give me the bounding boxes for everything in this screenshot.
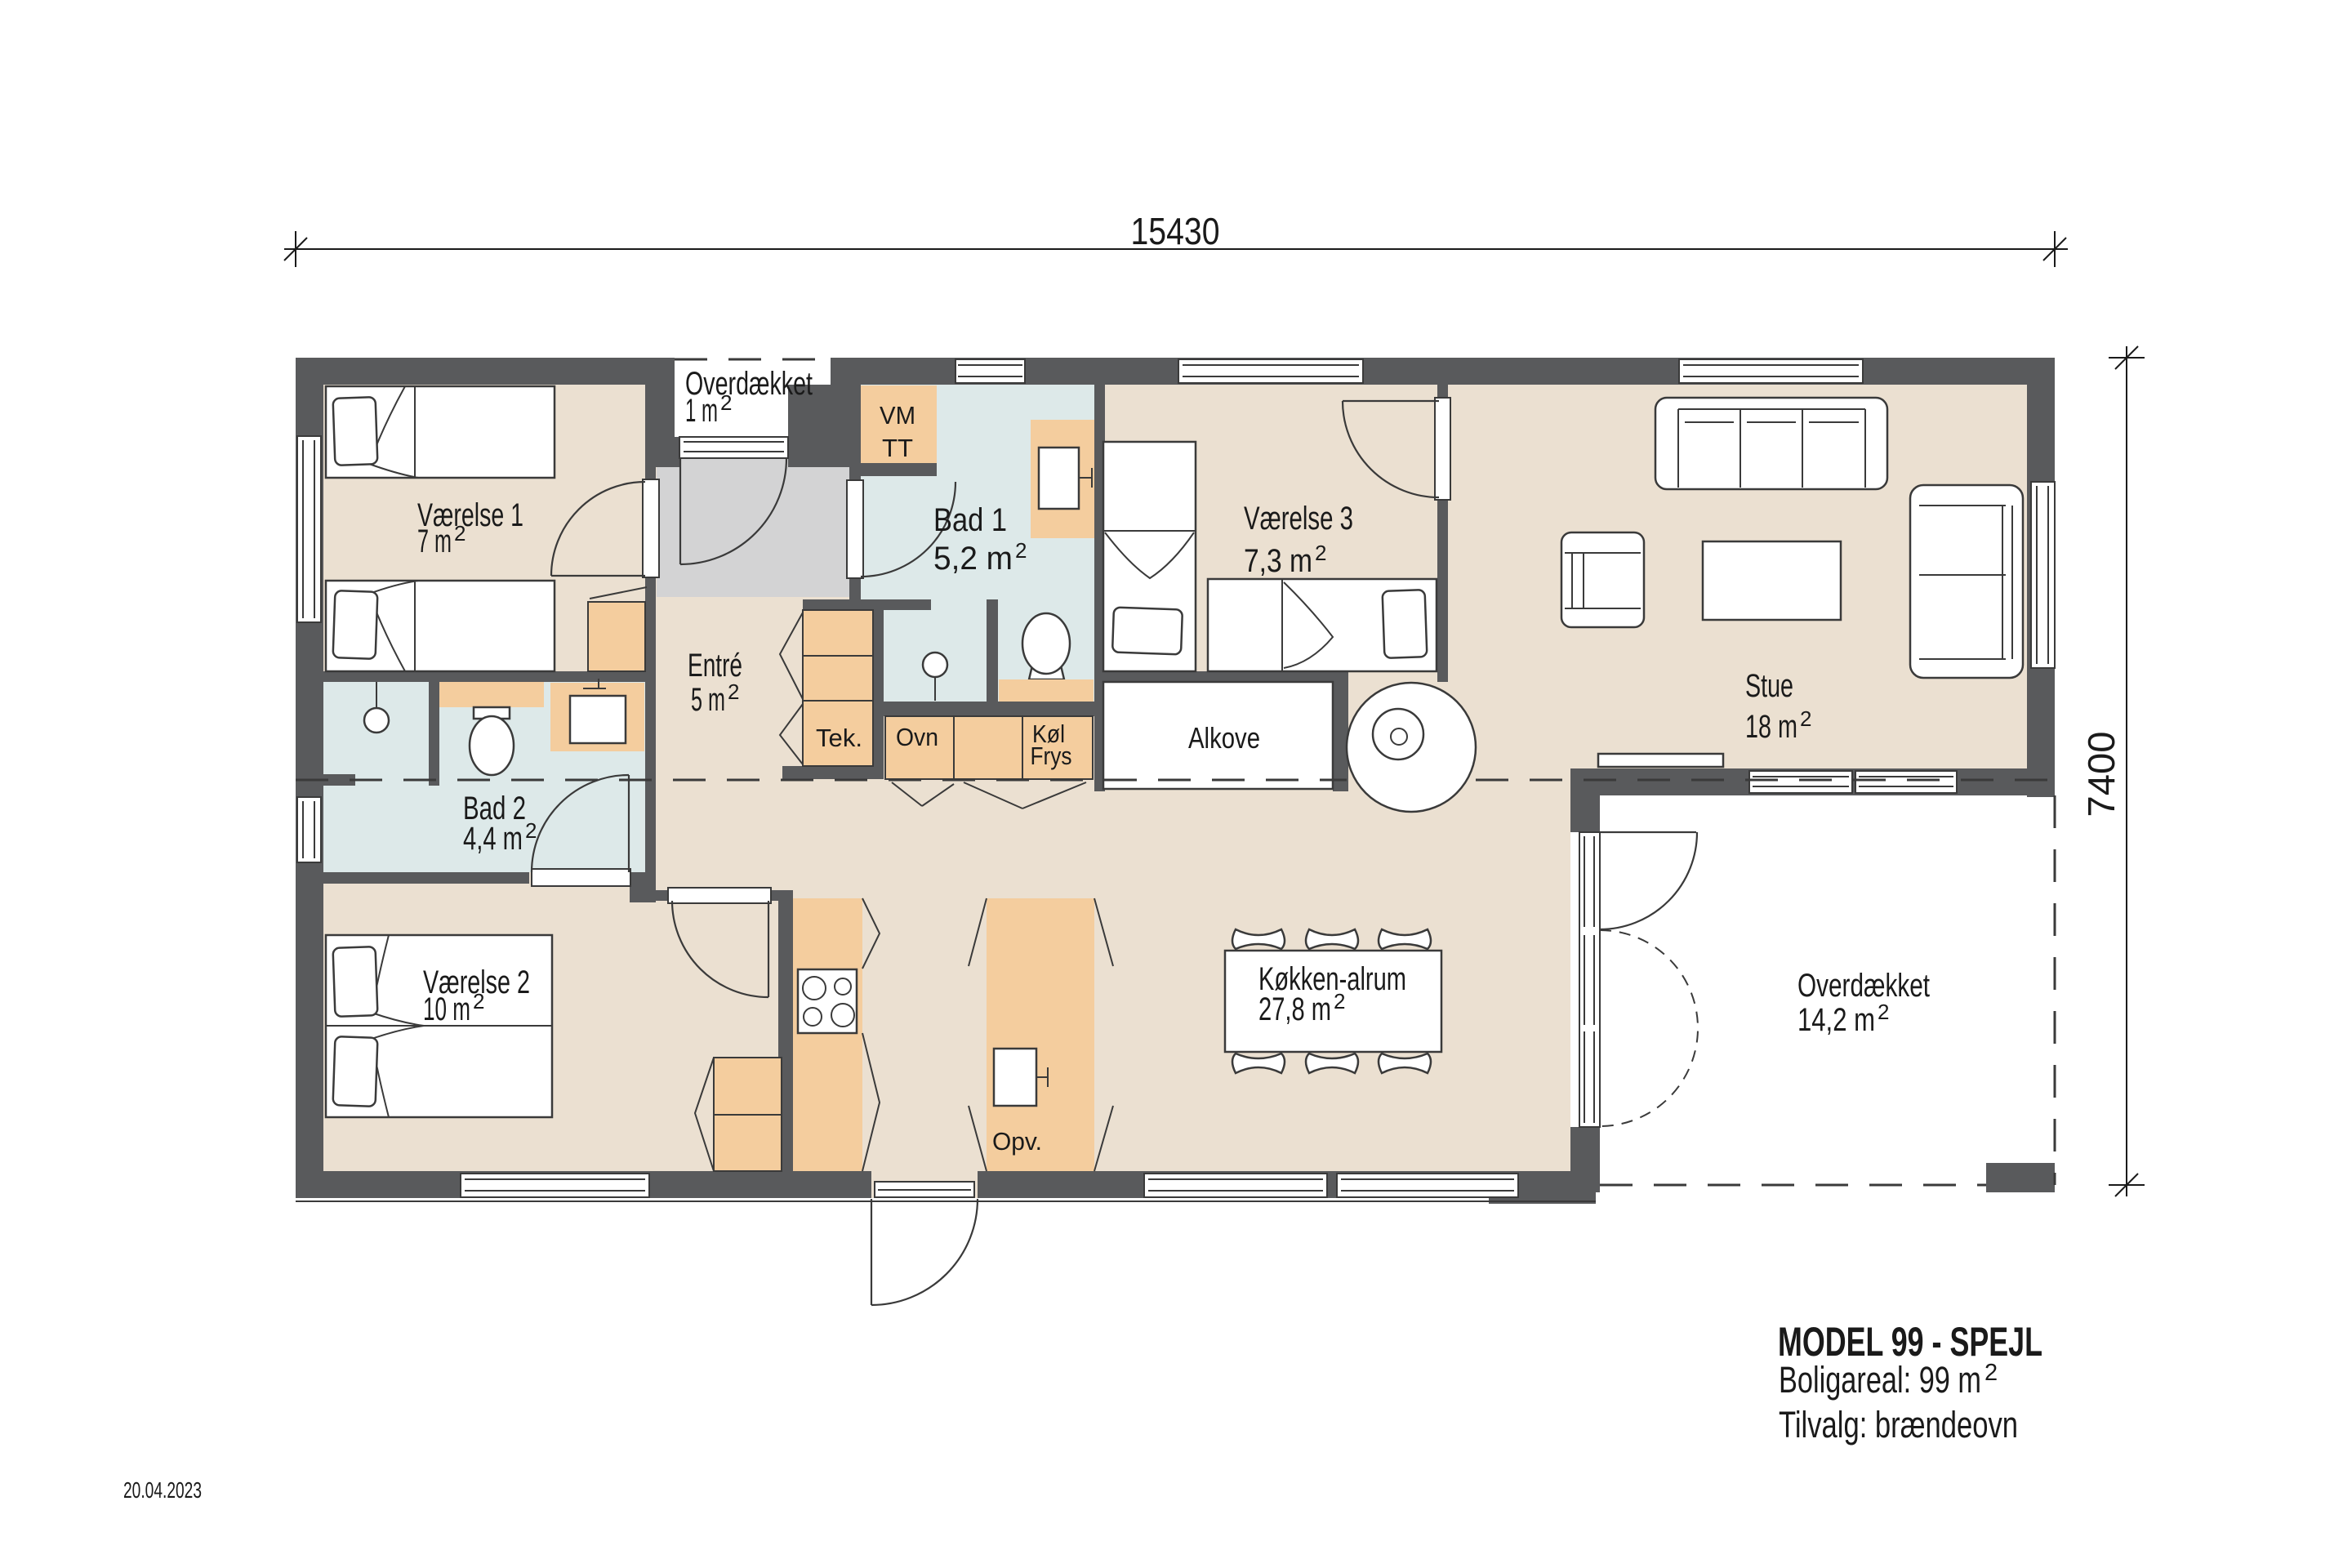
- svg-text:7 m: 7 m: [417, 523, 452, 559]
- svg-text:15430: 15430: [1131, 210, 1220, 252]
- svg-text:VM: VM: [880, 401, 915, 430]
- svg-text:2: 2: [728, 679, 739, 704]
- svg-text:Opv.: Opv.: [992, 1127, 1042, 1156]
- svg-text:Frys: Frys: [1031, 742, 1072, 770]
- svg-text:20.04.2023: 20.04.2023: [123, 1477, 202, 1503]
- svg-text:Bad 1: Bad 1: [933, 502, 1007, 538]
- svg-text:2: 2: [473, 989, 484, 1013]
- svg-text:Stue: Stue: [1745, 668, 1793, 704]
- svg-text:5,2 m: 5,2 m: [933, 541, 1013, 577]
- svg-text:MODEL 99 - SPEJL: MODEL 99 - SPEJL: [1778, 1319, 2042, 1365]
- svg-text:7,3 m: 7,3 m: [1244, 543, 1312, 579]
- svg-text:2: 2: [1984, 1360, 1998, 1386]
- svg-text:10 m: 10 m: [423, 991, 470, 1027]
- svg-text:27,8 m: 27,8 m: [1258, 991, 1331, 1027]
- svg-text:18 m: 18 m: [1745, 709, 1797, 745]
- svg-text:Ovn: Ovn: [896, 723, 938, 751]
- svg-text:Tek.: Tek.: [816, 724, 862, 752]
- svg-text:7400: 7400: [2080, 732, 2123, 817]
- svg-text:TT: TT: [882, 434, 913, 462]
- svg-text:14,2 m: 14,2 m: [1797, 1002, 1875, 1038]
- svg-text:5 m: 5 m: [691, 682, 725, 718]
- svg-text:2: 2: [720, 390, 732, 415]
- svg-text:2: 2: [1878, 1000, 1889, 1024]
- svg-text:2: 2: [1315, 541, 1326, 565]
- svg-text:2: 2: [454, 521, 465, 546]
- svg-text:2: 2: [1334, 989, 1345, 1013]
- svg-text:4,4 m: 4,4 m: [463, 821, 523, 857]
- svg-text:Tilvalg: brændeovn: Tilvalg: brændeovn: [1779, 1404, 2018, 1445]
- svg-text:Boligareal: 99 m: Boligareal: 99 m: [1779, 1359, 1981, 1401]
- svg-text:Entré: Entré: [688, 648, 742, 684]
- svg-text:2: 2: [1015, 538, 1027, 563]
- svg-text:2: 2: [1800, 706, 1811, 731]
- svg-text:Overdækket: Overdækket: [1797, 968, 1930, 1004]
- svg-text:Værelse 3: Værelse 3: [1244, 501, 1353, 537]
- svg-text:Alkove: Alkove: [1188, 721, 1260, 755]
- svg-text:2: 2: [525, 818, 537, 843]
- svg-text:1 m: 1 m: [685, 393, 718, 429]
